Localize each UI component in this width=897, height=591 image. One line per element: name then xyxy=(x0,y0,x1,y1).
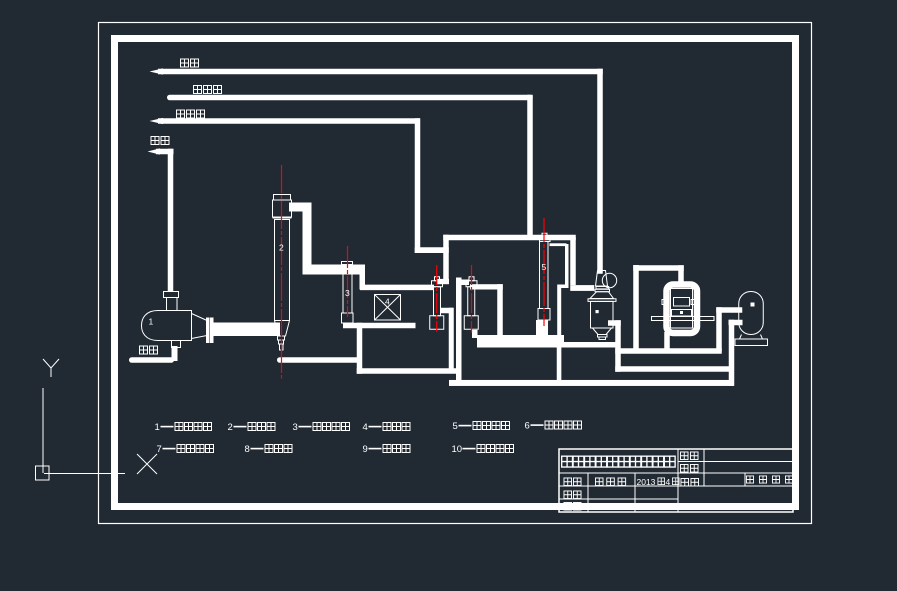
svg-text:2: 2 xyxy=(228,422,233,433)
svg-text:3: 3 xyxy=(293,422,298,433)
svg-text:3: 3 xyxy=(345,288,350,298)
svg-text:2: 2 xyxy=(279,243,284,253)
svg-text:9: 9 xyxy=(363,444,368,455)
svg-text:5: 5 xyxy=(453,421,458,432)
svg-text:4: 4 xyxy=(363,422,368,433)
svg-text:7: 7 xyxy=(157,444,162,455)
svg-text:6: 6 xyxy=(525,421,530,432)
svg-text:4: 4 xyxy=(666,477,671,487)
svg-text:8: 8 xyxy=(245,444,250,455)
svg-text:10: 10 xyxy=(452,444,463,455)
svg-text:5: 5 xyxy=(542,262,547,272)
svg-text:4: 4 xyxy=(385,297,390,307)
svg-text:2013: 2013 xyxy=(637,477,656,487)
svg-text:1: 1 xyxy=(149,317,154,327)
svg-text:1: 1 xyxy=(155,422,160,433)
